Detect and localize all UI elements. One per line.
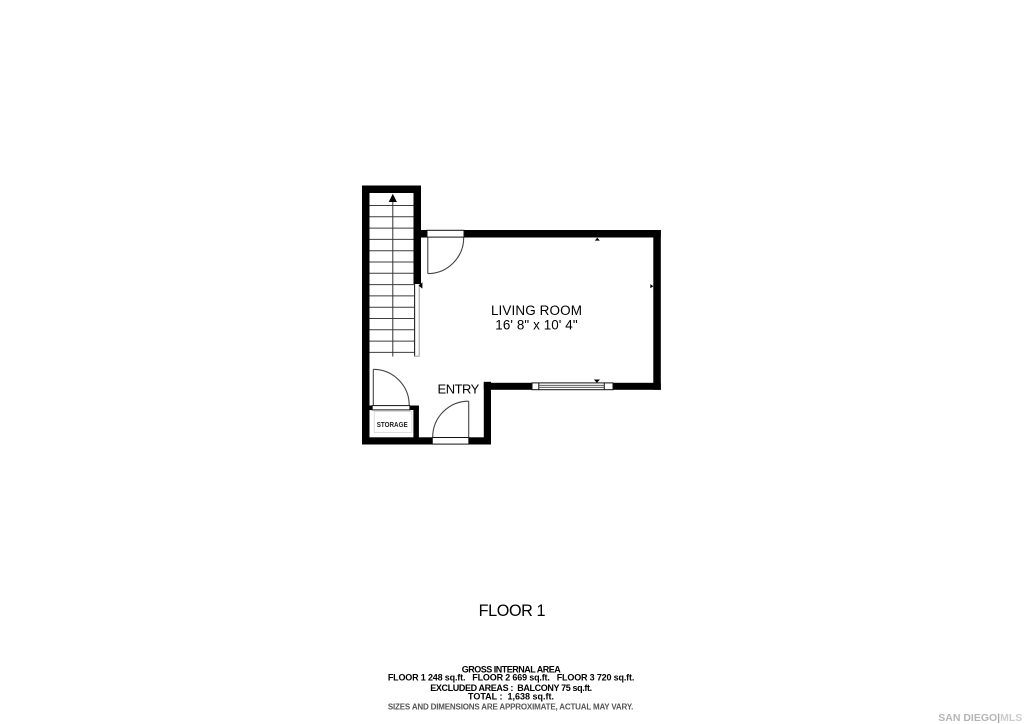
svg-text:LIVING ROOM: LIVING ROOM	[491, 303, 582, 318]
svg-text:16' 8" x 10' 4": 16' 8" x 10' 4"	[495, 318, 578, 333]
svg-text:STORAGE: STORAGE	[377, 422, 408, 429]
svg-text:FLOOR 1: FLOOR 1	[479, 602, 546, 620]
svg-text:TOTAL : 1,638 sq.ft.: TOTAL : 1,638 sq.ft.	[468, 691, 554, 701]
svg-text:SIZES AND DIMENSIONS ARE APPRO: SIZES AND DIMENSIONS ARE APPROXIMATE, AC…	[388, 703, 633, 712]
svg-text:SAN DIEGO|MLS: SAN DIEGO|MLS	[938, 712, 1022, 724]
svg-text:FLOOR 1 248 sq.ft. FLOOR 2 6: FLOOR 1 248 sq.ft. FLOOR 2 669 sq.ft. FL…	[388, 673, 634, 683]
svg-text:ENTRY: ENTRY	[438, 382, 480, 397]
